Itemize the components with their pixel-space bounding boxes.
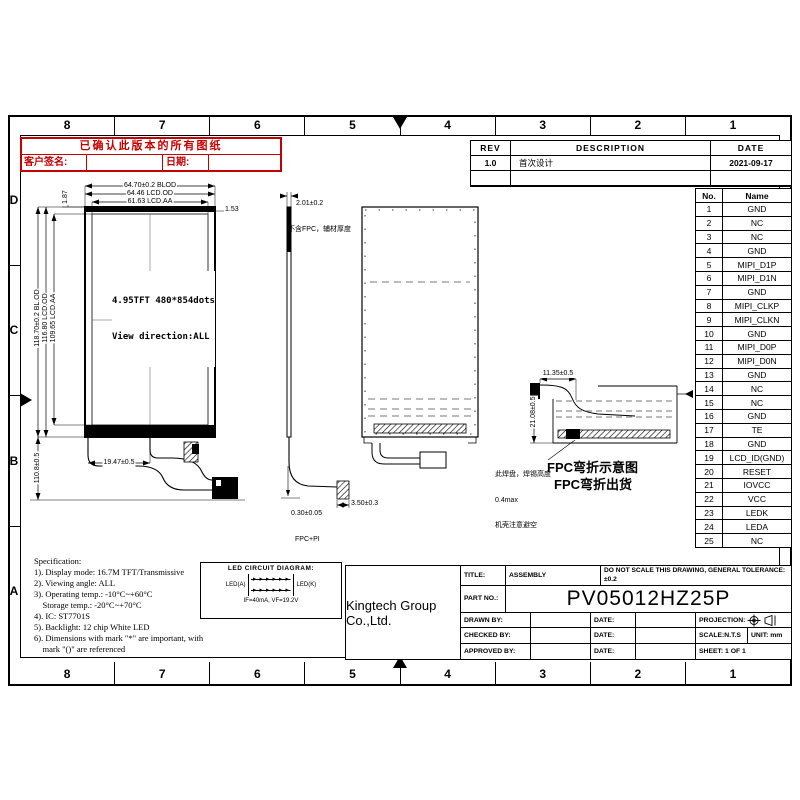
led-diode-icon: ▸ [279, 576, 283, 583]
dim-front-height-blod: 118.70±0.2 BL.OD [34, 288, 42, 347]
dim-front-corner-right: 1.53 [225, 206, 239, 215]
folded-caption-1: FPC弯折示意图 [547, 464, 638, 473]
checked-date-label: DATE: [591, 628, 636, 644]
dim-side-thickness-note: 不含FPC，辅材厚度 [288, 226, 351, 235]
spec-line: 2). Viewing angle: ALL [34, 578, 209, 589]
led-diode-row: ▸▸▸▸▸▸ [251, 574, 290, 585]
checked-by-field [531, 628, 591, 644]
checked-date-field [636, 628, 696, 644]
drawn-by-field [531, 613, 591, 628]
spec-title: Specification: [34, 556, 209, 567]
dim-front-width-od: 64.46 LCD.OD [126, 190, 174, 198]
dim-front-corner-left: 1.87 [62, 189, 70, 205]
dim-front-height-aa: 109.65 LCD.AA [50, 293, 58, 344]
dim-side-fpc-note: FPC+PI [291, 536, 322, 545]
dim-front-width-blod: 64.70±0.2 BLOD [123, 182, 177, 190]
projection-label: PROJECTION: [699, 617, 745, 624]
part-number: PV05012HZ25P [506, 586, 791, 613]
led-circuit-diagram: LED CIRCUIT DIAGRAM: LED(A) ▸▸▸▸▸▸▸▸▸▸▸▸… [200, 562, 342, 619]
dim-front-fpc-width: 19.47±0.5 [102, 459, 135, 467]
dim-front-width-aa: 61.63 LCD.AA [127, 198, 174, 206]
title-label: TITLE: [461, 566, 506, 586]
drawn-date-label: DATE: [591, 613, 636, 628]
dim-front-height-od: 116.80 LCD.OD [42, 292, 50, 343]
projection-cell: PROJECTION: [696, 613, 791, 628]
spec-line: 5). Backlight: 12 chip White LED [34, 622, 209, 633]
panel-description: 4.95TFT 480*854dots View direction:ALL [112, 271, 215, 367]
led-diode-icon: ▸ [253, 587, 257, 594]
led-diode-icon: ▸ [266, 576, 270, 583]
approved-date-field [636, 644, 696, 659]
led-diode-icon: ▸ [253, 576, 257, 583]
tolerance-note: DO NOT SCALE THIS DRAWING, GENERAL TOLER… [601, 566, 791, 586]
dim-folded-extension: 11.35±0.5 [542, 370, 575, 378]
led-cathode-label: LED(K) [297, 582, 317, 588]
projection-symbol-icon [747, 614, 777, 627]
title-value: ASSEMBLY [506, 566, 601, 586]
led-rating: IF=40mA, VF=19.2V [201, 598, 341, 604]
pad-note-line1: 此焊盘，焊锡高度 [495, 471, 551, 480]
panel-line2: View direction:ALL [112, 331, 215, 343]
dim-side-thickness-group: 2.01±0.2 不含FPC，辅材厚度 [288, 183, 351, 251]
spec-line: 4). IC: ST7701S [34, 611, 209, 622]
specification: Specification: 1). Display mode: 16.7M T… [34, 556, 209, 655]
folded-view [530, 379, 693, 460]
led-diode-row: ▸▸▸▸▸▸ [251, 585, 290, 596]
led-title: LED CIRCUIT DIAGRAM: [201, 565, 341, 572]
title-block: Kingtech Group Co.,Ltd. TITLE: ASSEMBLY … [345, 565, 792, 660]
company-name: Kingtech Group Co.,Ltd. [346, 566, 461, 659]
unit-label: UNIT: mm [748, 628, 791, 644]
drawn-by-label: DRAWN BY: [461, 613, 531, 628]
led-diode-icon: ▸ [273, 576, 277, 583]
led-diode-icon: ▸ [259, 576, 263, 583]
led-diode-icon: ▸ [286, 576, 290, 583]
pad-note-line2: 0.4max [495, 497, 551, 506]
part-label: PART NO.: [461, 586, 506, 613]
approved-by-label: APPROVED BY: [461, 644, 531, 659]
led-rows: ▸▸▸▸▸▸▸▸▸▸▸▸ [248, 574, 293, 596]
spec-line: Storage temp.: -20°C~+70°C [34, 600, 209, 611]
checked-by-label: CHECKED BY: [461, 628, 531, 644]
led-anode-label: LED(A) [226, 582, 246, 588]
drawing-sheet: 87654321 87654321 DCBA DCBA 已确认此版本的所有图纸 … [0, 0, 800, 800]
dim-side-fpc-group: 0.30±0.05 FPC+PI [291, 493, 322, 561]
sheet-label: SHEET: 1 OF 1 [696, 644, 791, 659]
spec-lines: 1). Display mode: 16.7M TFT/Transmissive… [34, 567, 209, 655]
led-diode-icon: ▸ [266, 587, 270, 594]
spec-line: 6). Dimensions with mark "*" are importa… [34, 633, 209, 644]
approved-date-label: DATE: [591, 644, 636, 659]
pad-note: 此焊盘，焊锡高度 0.4max 机壳注意避空 [495, 454, 551, 548]
drawing-line-art [0, 0, 800, 800]
led-diode-icon: ▸ [273, 587, 277, 594]
led-diode-icon: ▸ [286, 587, 290, 594]
dim-side-thickness: 2.01±0.2 [288, 200, 351, 209]
folded-caption-2: FPC弯折出货 [554, 481, 632, 490]
scale-label: SCALE:N.T.S [696, 628, 748, 644]
dim-side-fpc-thickness: 0.30±0.05 [291, 510, 322, 519]
spec-line: 1). Display mode: 16.7M TFT/Transmissive [34, 567, 209, 578]
drawn-date-field [636, 613, 696, 628]
dim-folded-height: 21.08±0.5 [530, 395, 538, 428]
back-view [362, 207, 478, 468]
dim-front-fpc-height: 110.8±0.5 [34, 452, 42, 485]
dim-side-connector: 3.50±0.3 [351, 500, 378, 509]
spec-line: mark "()" are referenced [34, 644, 209, 655]
approved-by-field [531, 644, 591, 659]
led-diode-icon: ▸ [279, 587, 283, 594]
spec-line: 3). Operating temp.: -10°C~+60°C [34, 589, 209, 600]
led-diode-icon: ▸ [259, 587, 263, 594]
pad-note-line3: 机壳注意避空 [495, 522, 551, 531]
panel-line1: 4.95TFT 480*854dots [112, 295, 215, 307]
